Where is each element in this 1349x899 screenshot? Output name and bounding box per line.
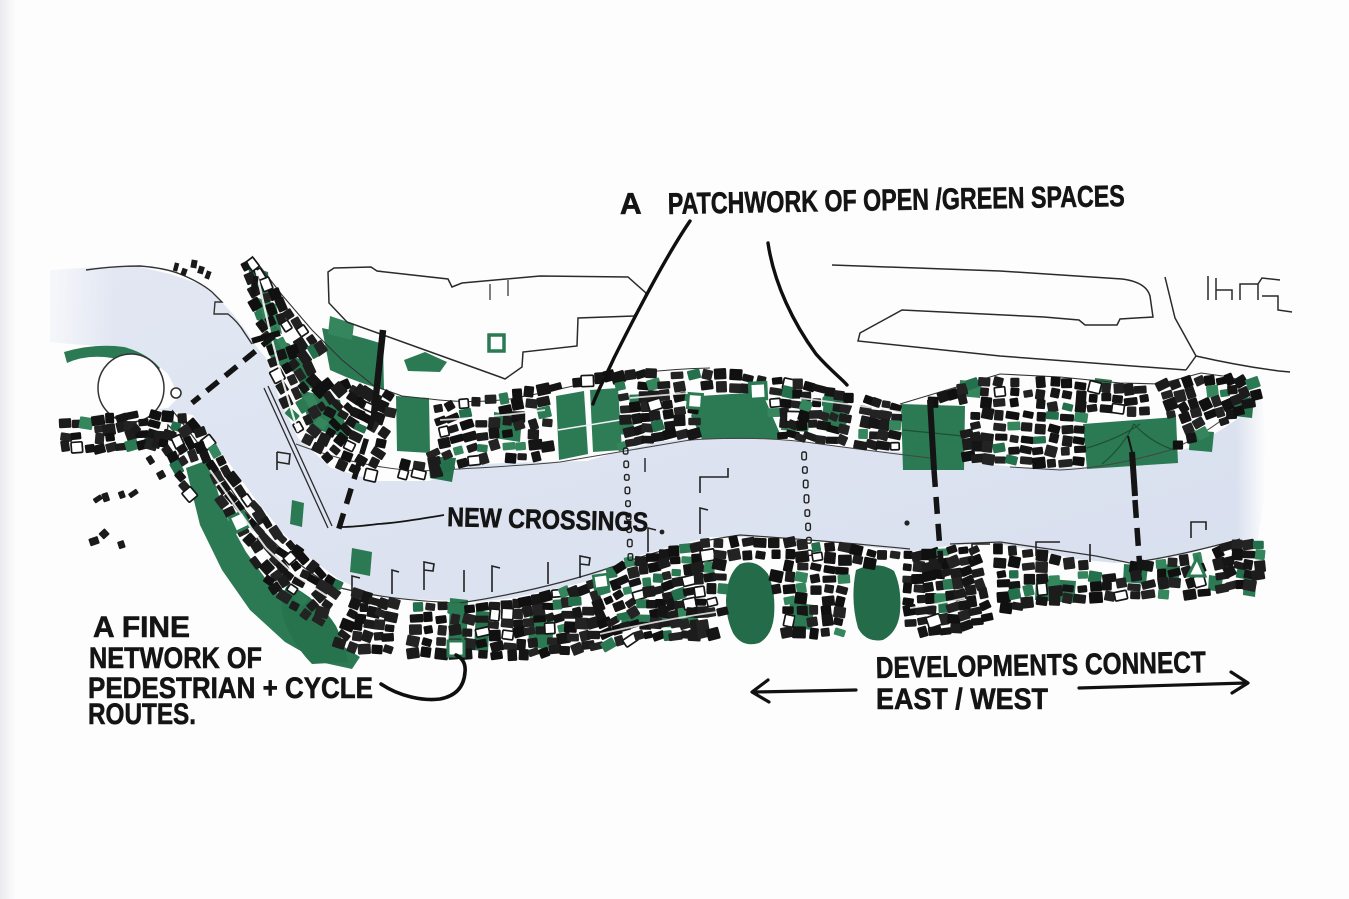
svg-text:A: A	[620, 188, 642, 221]
svg-text:NEW CROSSINGS: NEW CROSSINGS	[447, 502, 649, 537]
svg-text:A FINE: A FINE	[93, 611, 190, 644]
svg-text:ROUTES.: ROUTES.	[88, 698, 196, 731]
svg-text:DEVELOPMENTS CONNECT: DEVELOPMENTS CONNECT	[876, 646, 1207, 685]
svg-text:EAST / WEST: EAST / WEST	[876, 683, 1048, 716]
svg-text:NETWORK OF: NETWORK OF	[89, 642, 262, 675]
